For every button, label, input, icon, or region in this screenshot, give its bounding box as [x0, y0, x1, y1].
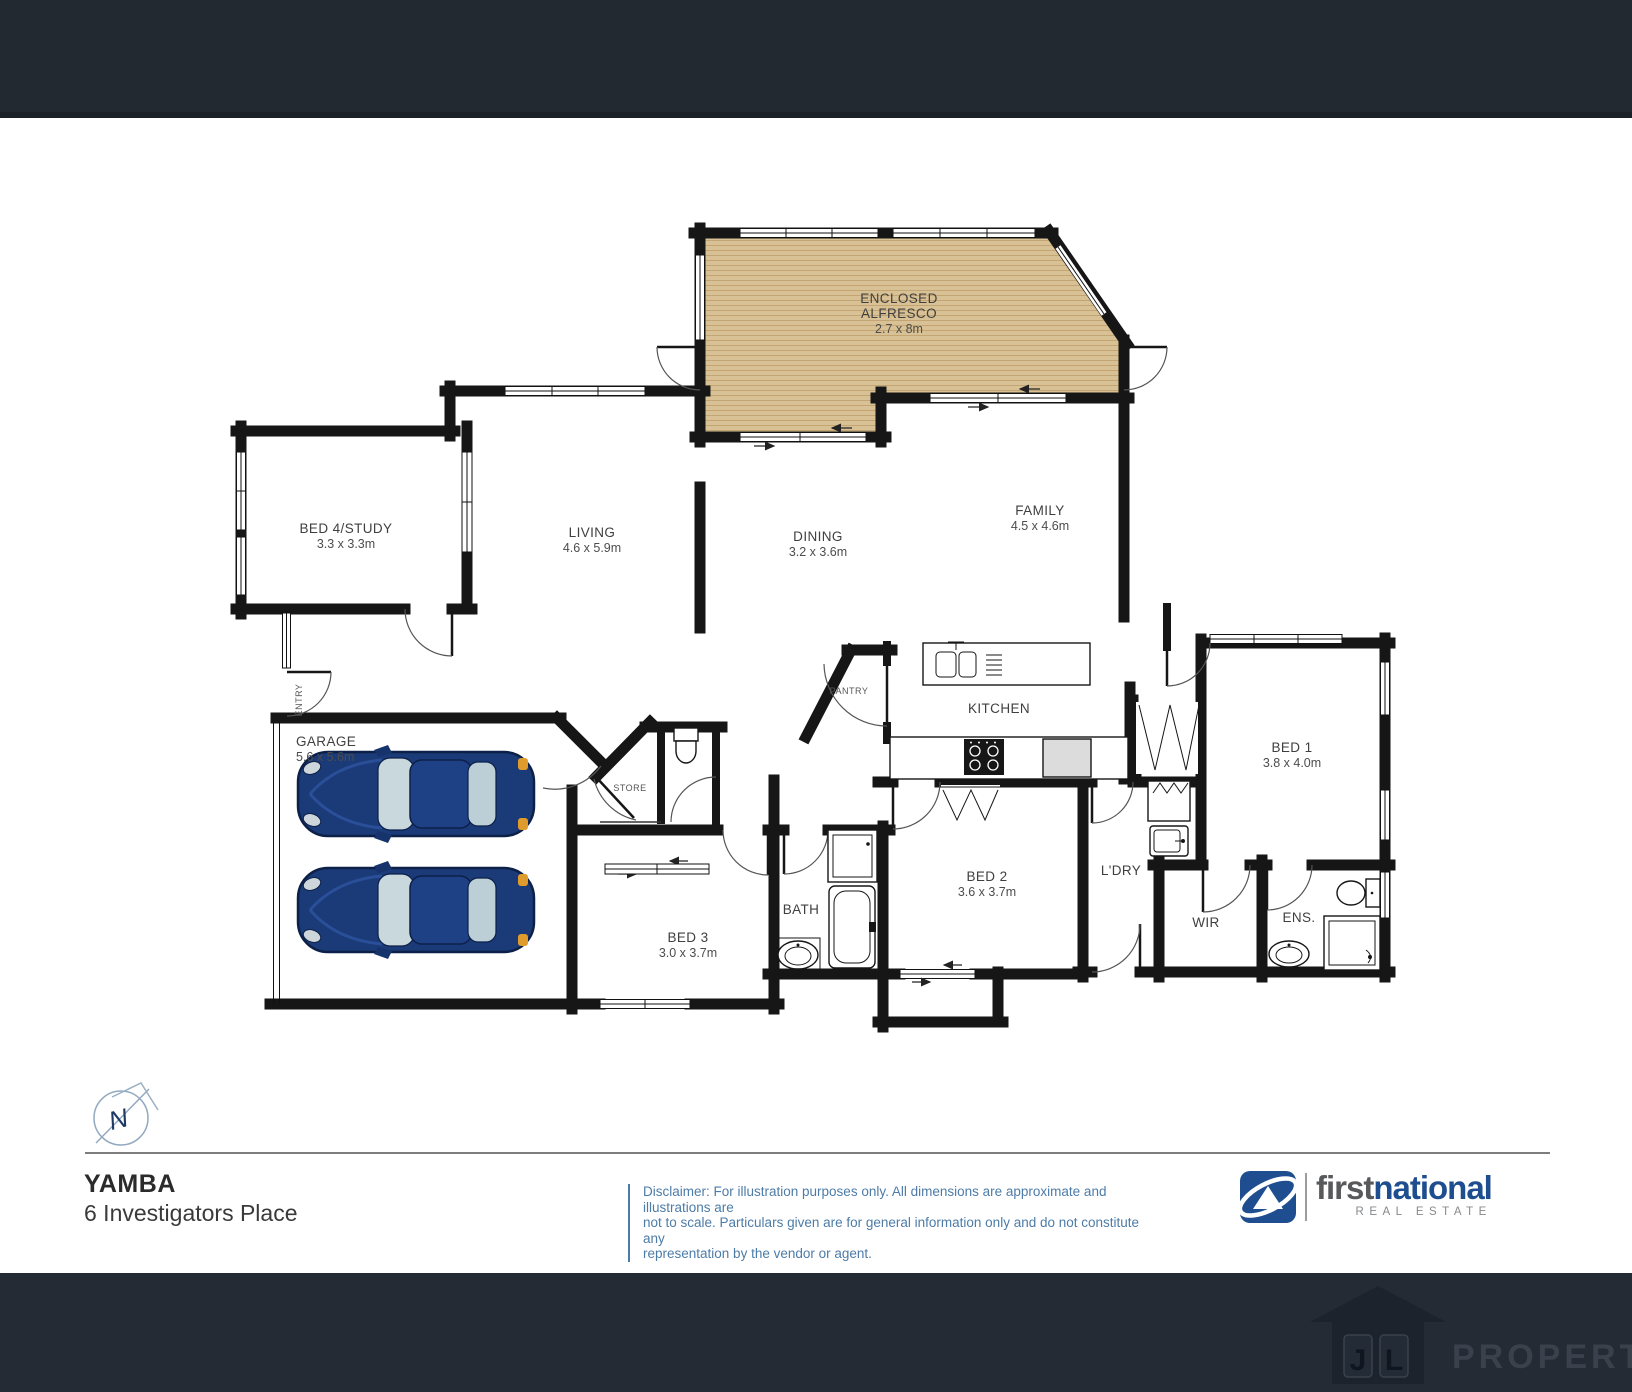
brand-tagline: REAL ESTATE: [1356, 1206, 1492, 1218]
laundry-trough-icon: [1148, 781, 1190, 821]
bed2-robe-icon: [941, 785, 1000, 824]
label-kitchen: KITCHEN: [968, 701, 1030, 716]
label-bed3-dims: 3.0 x 3.7m: [659, 946, 717, 960]
label-bed2-dims: 3.6 x 3.7m: [958, 885, 1016, 899]
label-alfresco-2: ALFRESCO: [861, 306, 937, 321]
brand-national: national: [1373, 1169, 1492, 1206]
disclaimer-line-3: representation by the vendor or agent.: [643, 1246, 1163, 1262]
ens-basin-icon: [1269, 941, 1309, 967]
suburb-title: YAMBA: [84, 1170, 176, 1199]
ens-shower-icon: [1324, 916, 1380, 970]
label-entry: ENTRY: [294, 684, 304, 717]
bed4-robe-icon: [462, 452, 472, 552]
page: { "rooms": { "alfresco": {"line1": "ENCL…: [0, 0, 1632, 1392]
label-bed4-dims: 3.3 x 3.3m: [317, 537, 375, 551]
laundry-sink-icon: [1150, 826, 1188, 856]
label-bed1: BED 1: [1271, 740, 1312, 755]
stove-icon: [964, 739, 1004, 775]
watermark-initial-j: J: [1350, 1344, 1367, 1377]
brand-wordmark: firstnational: [1316, 1171, 1492, 1205]
bath-shower-icon: [828, 830, 877, 882]
first-national-icon: [1240, 1171, 1296, 1223]
house-roof-icon: [1310, 1286, 1446, 1322]
kitchen-island: [923, 643, 1090, 685]
label-bed1-dims: 3.8 x 4.0m: [1263, 756, 1321, 770]
watermark-name: PROPERTY: [1452, 1338, 1632, 1376]
bed3-robe-icon: [605, 864, 709, 874]
first-national-logo: firstnational REAL ESTATE: [1240, 1171, 1492, 1223]
label-family-dims: 4.5 x 4.6m: [1011, 519, 1069, 533]
toilet-icon: [674, 728, 698, 763]
disclaimer-line-2: not to scale. Particulars given are for …: [643, 1215, 1163, 1246]
footer-divider: [85, 1152, 1550, 1154]
linen-robe-icon: [1136, 702, 1199, 774]
watermark-initial-l: L: [1385, 1344, 1403, 1377]
label-bed4: BED 4/STUDY: [300, 521, 393, 536]
label-alfresco-dims: 2.7 x 8m: [875, 322, 923, 336]
bathtub-icon: [829, 886, 876, 968]
label-bed3: BED 3: [667, 930, 708, 945]
label-store: STORE: [613, 783, 646, 793]
disclaimer-line-1: Disclaimer: For illustration purposes on…: [643, 1184, 1163, 1215]
label-garage-dims: 5.6 x 5.6m: [296, 750, 354, 764]
label-garage: GARAGE: [296, 734, 356, 749]
disclaimer: Disclaimer: For illustration purposes on…: [628, 1184, 1163, 1262]
label-bath: BATH: [783, 902, 820, 917]
label-living-dims: 4.6 x 5.9m: [563, 541, 621, 555]
label-dining-dims: 3.2 x 3.6m: [789, 545, 847, 559]
label-ens: ENS.: [1282, 910, 1315, 925]
label-bed2: BED 2: [966, 869, 1007, 884]
brand-first: first: [1316, 1169, 1373, 1206]
kitchen-bench: [890, 737, 1128, 779]
north-compass-icon: N: [86, 1072, 181, 1157]
label-alfresco-1: ENCLOSED: [860, 291, 937, 306]
label-family: FAMILY: [1015, 503, 1064, 518]
label-dining: DINING: [793, 529, 843, 544]
label-laundry: L'DRY: [1101, 863, 1141, 878]
ens-toilet-icon: [1337, 879, 1380, 907]
label-living: LIVING: [569, 525, 616, 540]
label-pantry: PANTRY: [830, 686, 869, 696]
label-wir: WIR: [1192, 915, 1219, 930]
bath-basin-icon: [776, 938, 820, 971]
logo-separator: [1305, 1173, 1307, 1221]
street-address: 6 Investigators Place: [84, 1200, 298, 1227]
fridge-icon: [1043, 739, 1091, 777]
jl-property-watermark: J L PROPERTY: [1302, 1280, 1632, 1390]
